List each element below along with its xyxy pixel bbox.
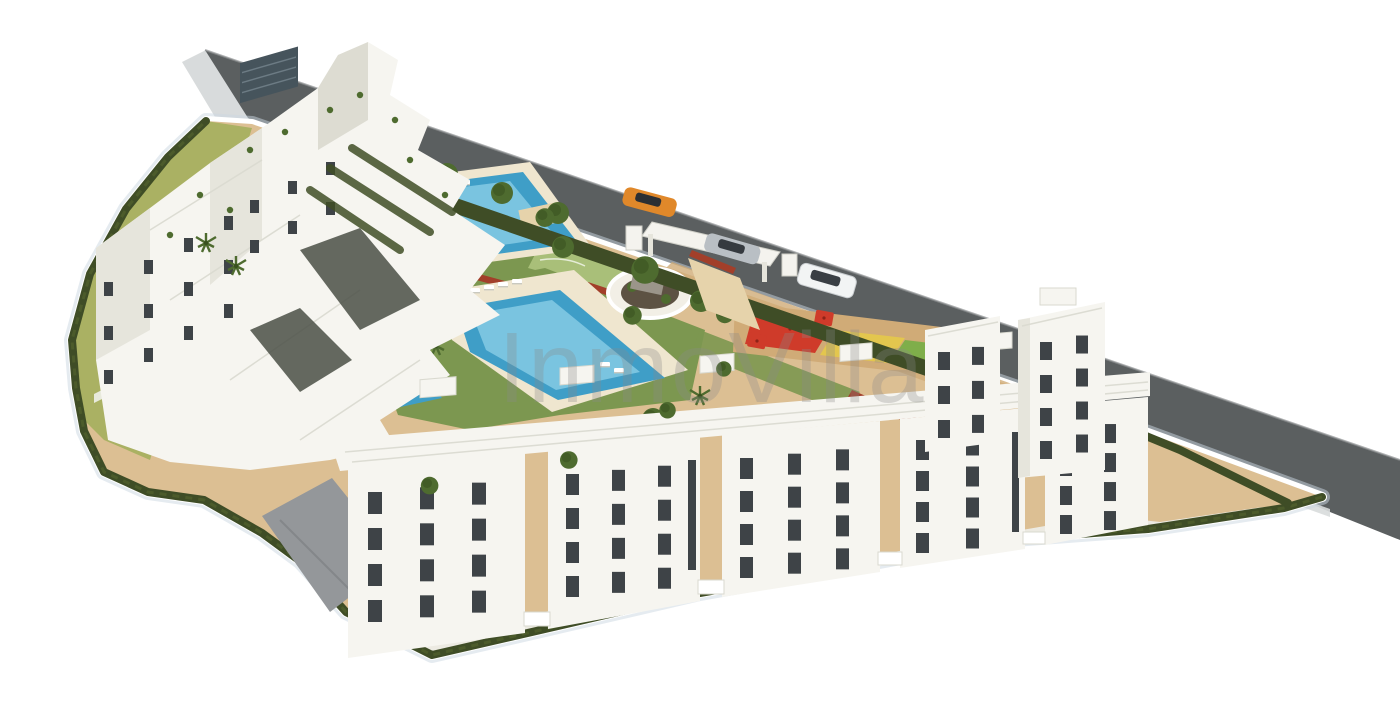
gate-pillar [762, 262, 767, 282]
tower-shade [1018, 318, 1030, 478]
gate-wall [626, 226, 642, 250]
aerial-render: InmoVilla [0, 0, 1400, 728]
gate-pillar [648, 234, 653, 256]
tower-2 [925, 316, 1000, 452]
render-canvas: InmoVilla [0, 0, 1400, 728]
watermark-text: InmoVilla [498, 312, 925, 424]
tower-1 [1018, 302, 1105, 478]
stairwell-glazing [1012, 432, 1019, 532]
tower-bulkhead [1040, 288, 1076, 305]
gate-wall [782, 254, 797, 276]
stairwell-glazing [688, 460, 696, 570]
